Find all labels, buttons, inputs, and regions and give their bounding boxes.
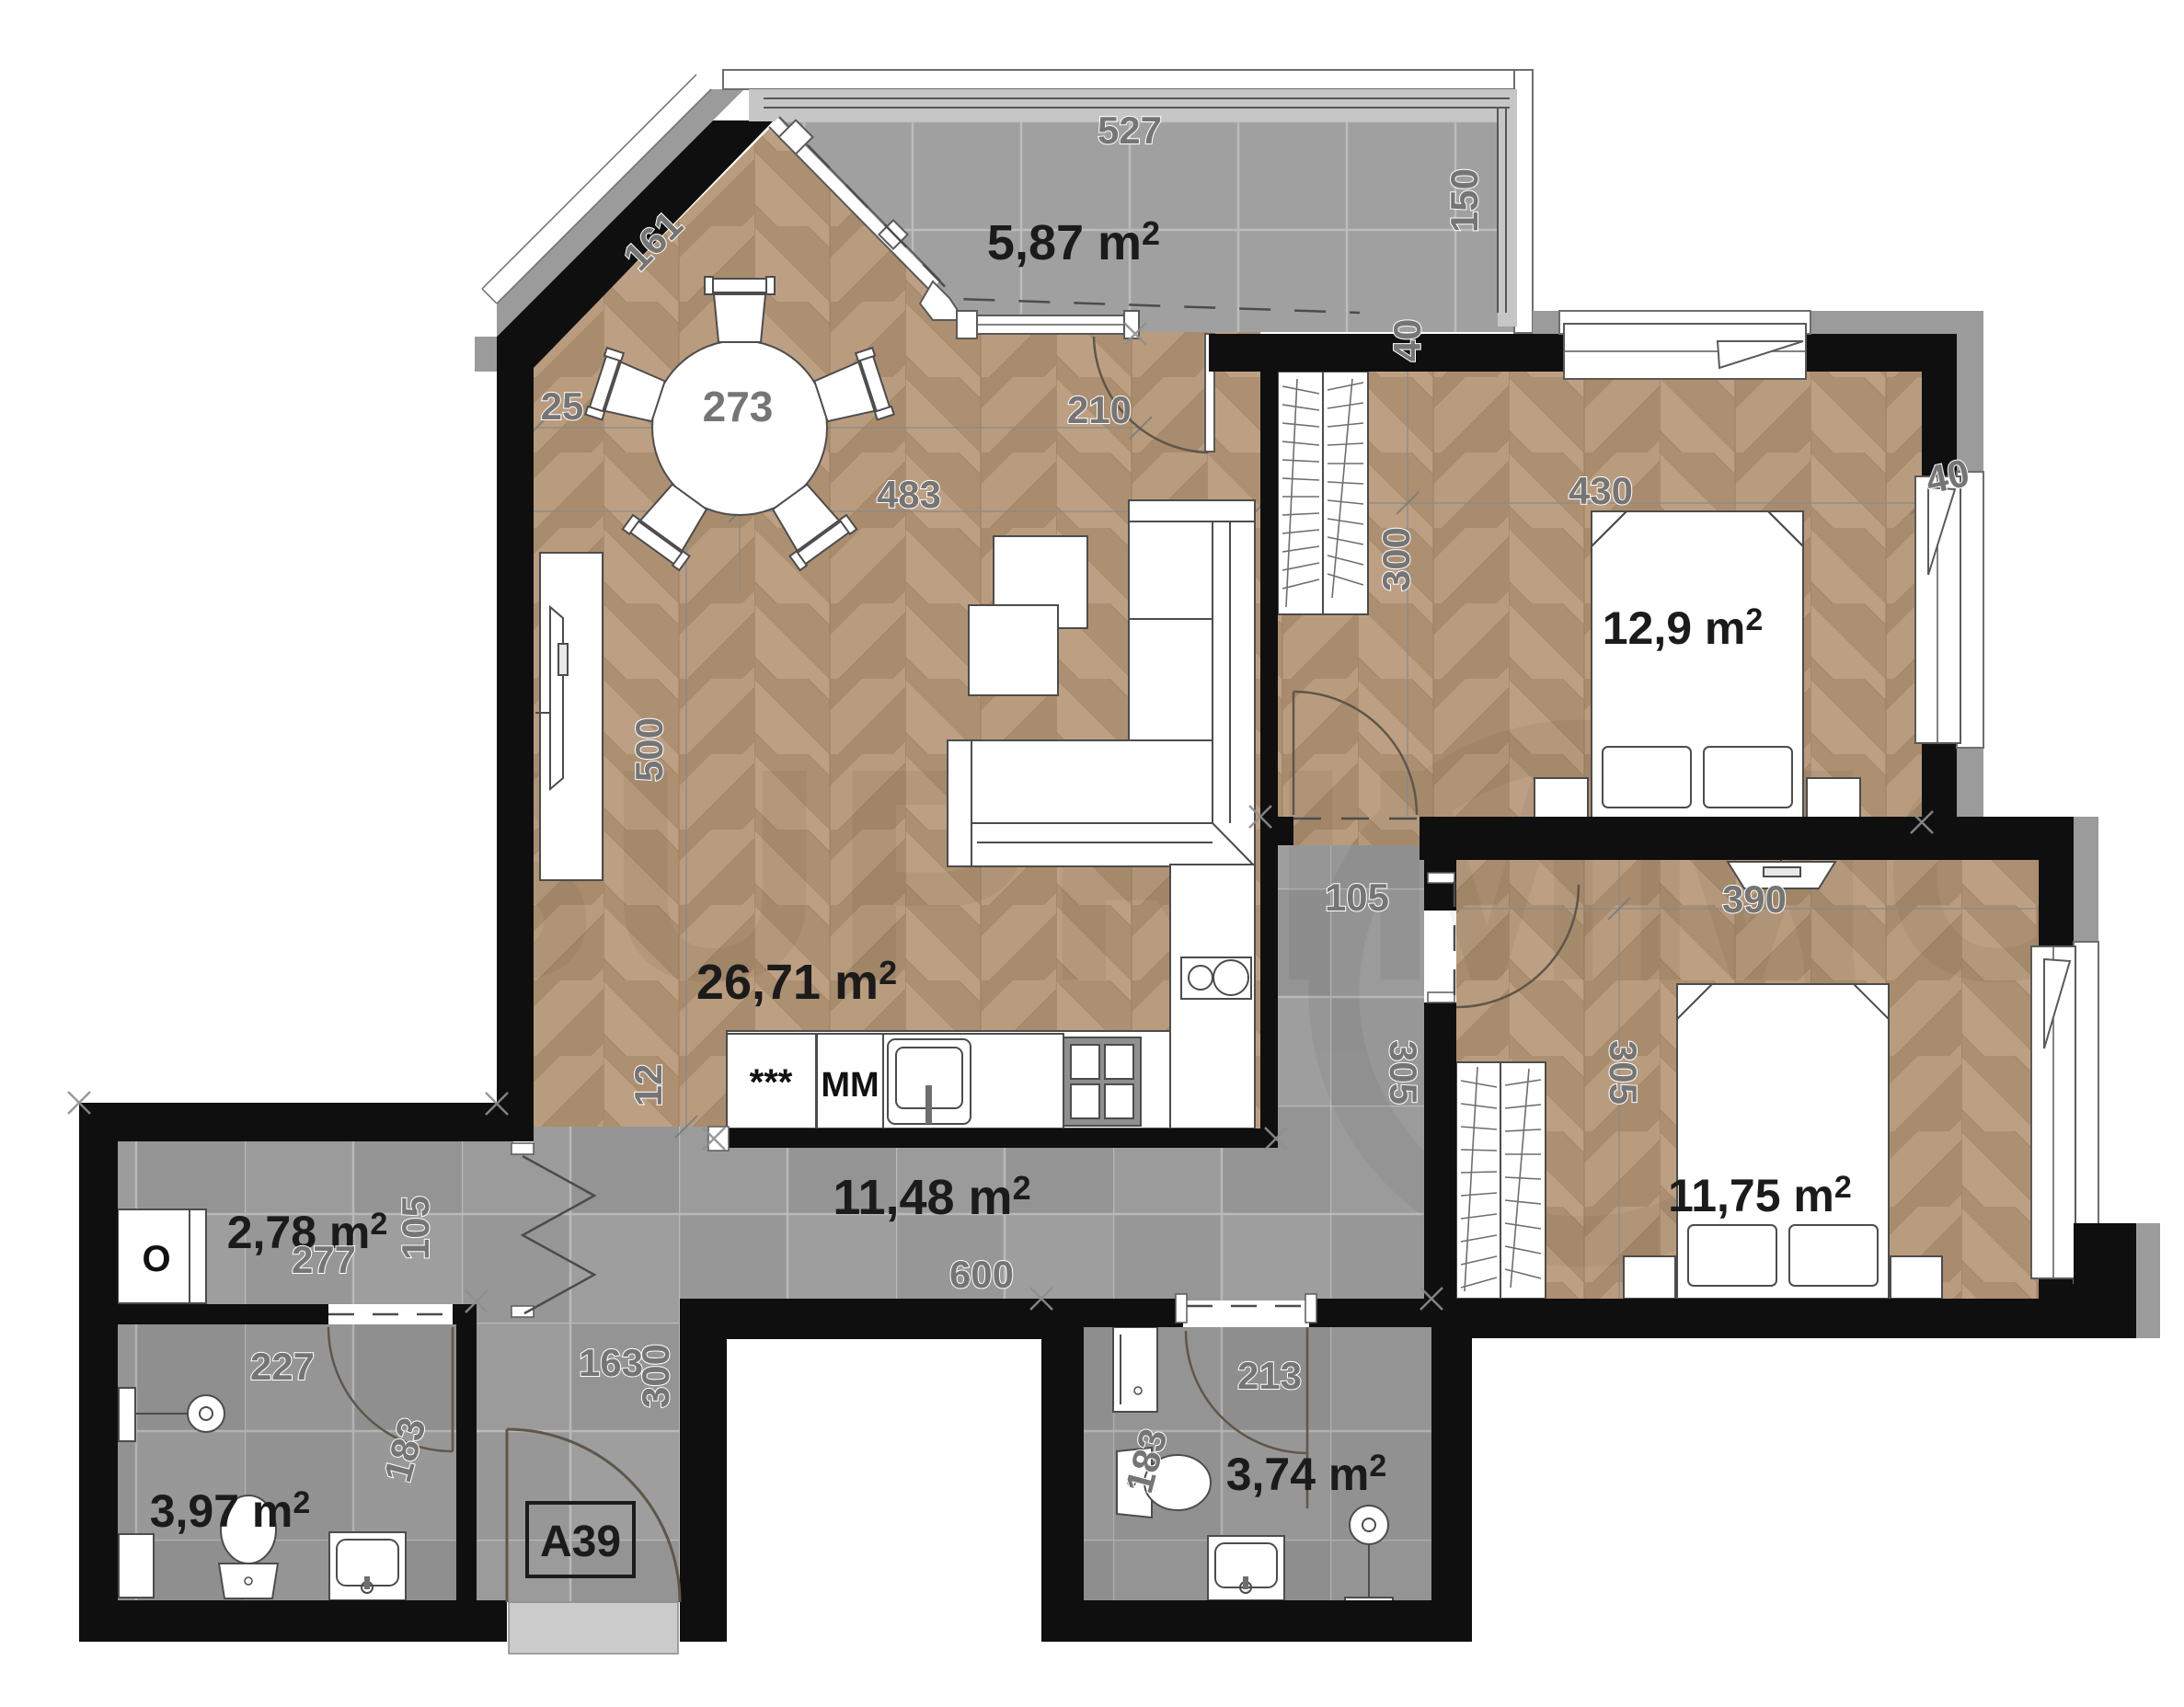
svg-text:213: 213	[1237, 1354, 1302, 1397]
svg-text:3,74 m2: 3,74 m2	[1226, 1449, 1387, 1500]
svg-text:300: 300	[1374, 527, 1418, 591]
svg-text:300: 300	[634, 1344, 677, 1408]
svg-text:527: 527	[1098, 109, 1162, 152]
svg-text:277: 277	[292, 1238, 356, 1281]
svg-text:390: 390	[1722, 877, 1787, 921]
svg-text:MM: MM	[821, 1066, 879, 1105]
svg-text:25: 25	[541, 384, 584, 428]
svg-text:305: 305	[1602, 1040, 1645, 1105]
svg-text:105: 105	[394, 1196, 437, 1260]
svg-text:210: 210	[1067, 388, 1132, 431]
svg-text:150: 150	[1443, 168, 1486, 233]
svg-text:227: 227	[250, 1345, 315, 1388]
svg-text:11,48 m2: 11,48 m2	[833, 1169, 1030, 1225]
svg-text:305: 305	[1382, 1040, 1425, 1105]
svg-text:12: 12	[626, 1064, 670, 1107]
svg-text:26,71 m2: 26,71 m2	[696, 954, 897, 1010]
svg-text:40: 40	[1385, 319, 1429, 362]
svg-text:600: 600	[949, 1253, 1014, 1296]
svg-text:12,9 m2: 12,9 m2	[1603, 602, 1764, 654]
svg-text:11,75 m2: 11,75 m2	[1668, 1170, 1852, 1221]
svg-text:A39: A39	[540, 1518, 621, 1566]
svg-text:3,97 m2: 3,97 m2	[150, 1485, 311, 1537]
svg-text:5,87 m2: 5,87 m2	[987, 214, 1160, 270]
svg-text:40: 40	[1922, 451, 1972, 502]
svg-text:500: 500	[627, 717, 671, 782]
svg-text:273: 273	[703, 383, 774, 430]
svg-text:483: 483	[877, 473, 941, 516]
svg-text:105: 105	[1325, 876, 1389, 919]
svg-text:430: 430	[1569, 469, 1633, 512]
svg-text:***: ***	[750, 1062, 793, 1103]
svg-text:O: O	[142, 1239, 170, 1279]
